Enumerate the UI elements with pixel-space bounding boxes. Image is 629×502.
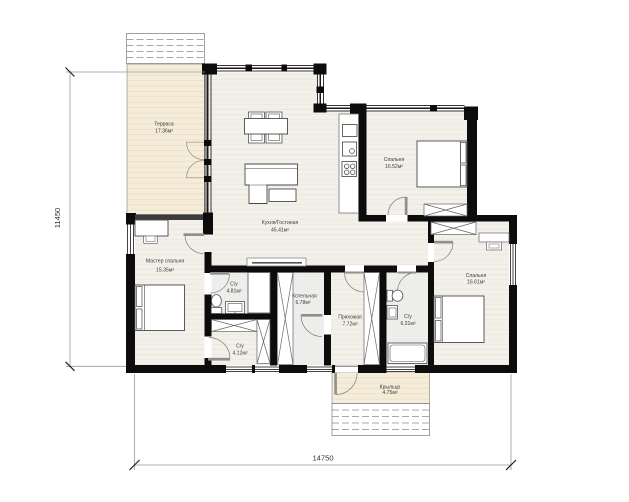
svg-text:С/у: С/у: [236, 344, 244, 350]
svg-text:С/у: С/у: [404, 314, 412, 320]
svg-text:7.72м²: 7.72м²: [342, 322, 357, 328]
svg-text:15.35м²: 15.35м²: [156, 268, 174, 274]
svg-text:4.12м²: 4.12м²: [232, 351, 247, 357]
svg-text:16.61м²: 16.61м²: [467, 280, 485, 286]
svg-text:6.31м²: 6.31м²: [400, 321, 415, 327]
svg-text:Терраса: Терраса: [154, 122, 174, 128]
svg-text:45.41м²: 45.41м²: [271, 228, 289, 234]
svg-text:14750: 14750: [312, 454, 333, 463]
svg-text:11450: 11450: [53, 208, 62, 229]
svg-text:Прихожая: Прихожая: [338, 315, 362, 321]
svg-text:4.75м²: 4.75м²: [382, 390, 397, 396]
svg-text:Спальня: Спальня: [466, 273, 487, 279]
svg-text:4.81м²: 4.81м²: [226, 289, 241, 295]
svg-text:16.52м²: 16.52м²: [385, 164, 403, 170]
svg-text:Мастер спальня: Мастер спальня: [146, 259, 185, 265]
svg-text:Спальня: Спальня: [384, 157, 405, 163]
svg-text:17.36м²: 17.36м²: [155, 129, 173, 135]
svg-text:Котельная: Котельная: [292, 294, 317, 300]
svg-text:6.78м²: 6.78м²: [295, 300, 310, 306]
svg-text:Кухня/Гостиная: Кухня/Гостиная: [262, 220, 299, 226]
svg-text:С/у: С/у: [230, 282, 238, 288]
